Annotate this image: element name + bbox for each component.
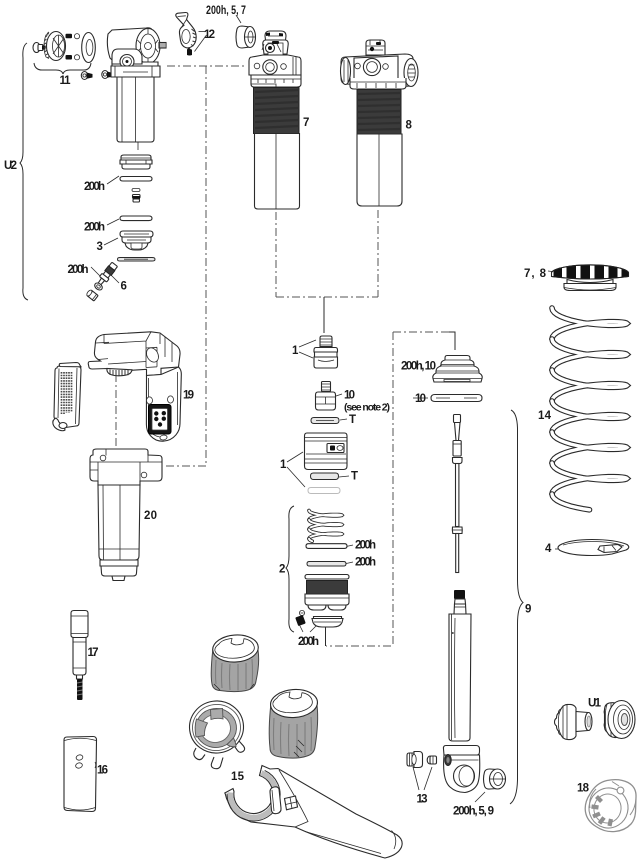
svg-text:10: 10: [344, 390, 355, 402]
svg-text:15: 15: [231, 771, 245, 783]
svg-text:11: 11: [60, 75, 72, 87]
svg-text:2: 2: [279, 564, 285, 576]
svg-text:200h, 5, 7: 200h, 5, 7: [206, 5, 246, 17]
svg-text:19: 19: [183, 390, 194, 402]
svg-text:20: 20: [144, 510, 157, 522]
svg-text:6: 6: [121, 281, 127, 293]
svg-text:200h: 200h: [355, 540, 376, 552]
svg-text:200h: 200h: [298, 636, 319, 648]
svg-text:1: 1: [280, 459, 287, 471]
svg-text:200h: 200h: [84, 222, 105, 234]
svg-text:18: 18: [577, 783, 590, 795]
svg-text:200h: 200h: [84, 181, 105, 193]
svg-text:13: 13: [417, 794, 428, 806]
svg-text:T: T: [349, 414, 356, 426]
svg-text:12: 12: [204, 29, 215, 41]
svg-text:T: T: [351, 471, 358, 483]
svg-text:(see note 2): (see note 2): [344, 402, 390, 414]
svg-text:U1: U1: [588, 698, 602, 710]
svg-text:14: 14: [538, 410, 552, 422]
svg-text:3: 3: [97, 241, 103, 253]
svg-text:200h: 200h: [355, 557, 376, 569]
svg-text:200h, 10: 200h, 10: [401, 361, 436, 373]
svg-text:200h, 5, 9: 200h, 5, 9: [453, 806, 494, 818]
svg-text:10: 10: [415, 393, 426, 405]
svg-text:U2: U2: [4, 160, 17, 172]
svg-text:1: 1: [292, 345, 299, 357]
svg-text:200h: 200h: [68, 264, 89, 276]
svg-text:7, 8: 7, 8: [524, 268, 547, 280]
svg-text:8: 8: [406, 120, 413, 132]
svg-text:16: 16: [97, 765, 108, 777]
svg-text:9: 9: [525, 604, 531, 616]
svg-text:17: 17: [88, 647, 99, 659]
svg-text:4: 4: [545, 543, 552, 555]
svg-text:7: 7: [303, 117, 309, 129]
